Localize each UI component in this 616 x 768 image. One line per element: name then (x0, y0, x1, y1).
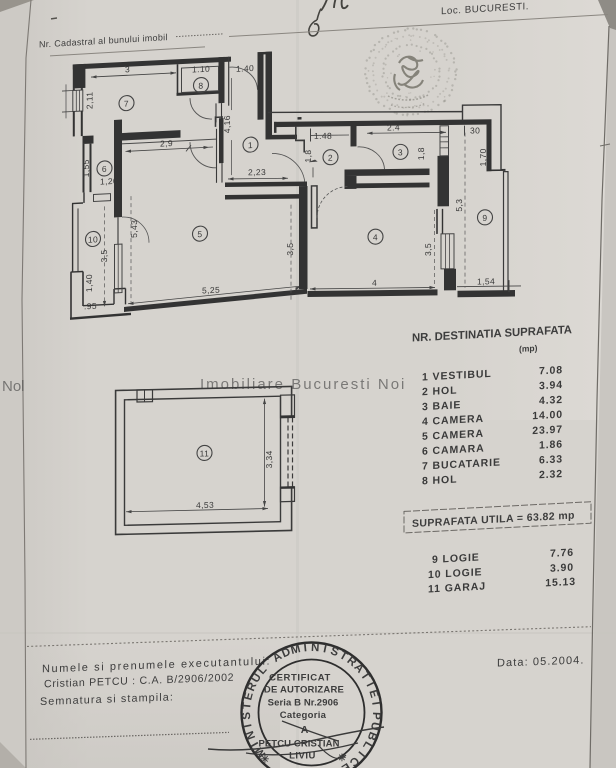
svg-text:4,16: 4,16 (222, 115, 232, 134)
svg-text:8: 8 (198, 80, 203, 90)
svg-text:.95: .95 (84, 301, 97, 312)
svg-text:1,8: 1,8 (303, 149, 313, 162)
svg-text:1: 1 (248, 140, 253, 150)
svg-text:3: 3 (398, 147, 403, 157)
svg-text:Nol: Nol (2, 378, 25, 395)
svg-text:6.33: 6.33 (539, 453, 563, 466)
svg-text:5: 5 (197, 229, 202, 239)
svg-text:T: T (241, 702, 254, 710)
svg-text:9: 9 (482, 213, 487, 223)
svg-text:15.13: 15.13 (545, 576, 576, 590)
svg-text:Imobiliare Bucuresti Noi: Imobiliare Bucuresti Noi (200, 376, 406, 393)
svg-text:S: S (241, 711, 253, 720)
svg-text:3 BAIE: 3 BAIE (422, 399, 461, 413)
svg-text:5,3: 5,3 (454, 199, 464, 212)
svg-text:2.4: 2.4 (387, 122, 400, 132)
svg-text:1.10: 1.10 (192, 64, 210, 75)
svg-text:7: 7 (124, 98, 129, 108)
svg-text:7.08: 7.08 (539, 364, 563, 377)
svg-text:1.48: 1.48 (314, 131, 332, 141)
svg-text:23.97: 23.97 (532, 424, 563, 438)
svg-text:✳: ✳ (261, 755, 270, 766)
svg-text:1,55: 1,55 (81, 159, 91, 178)
svg-text:3,5: 3,5 (285, 243, 295, 256)
svg-text:2 HOL: 2 HOL (422, 384, 457, 398)
svg-text:1,8: 1,8 (416, 147, 426, 160)
svg-text:1.40: 1.40 (236, 63, 254, 74)
svg-text:7.76: 7.76 (550, 547, 574, 560)
svg-text:1,40: 1,40 (84, 274, 94, 293)
svg-text:14.00: 14.00 (532, 409, 563, 423)
svg-text:4.32: 4.32 (539, 394, 563, 407)
svg-text:(mp): (mp) (519, 343, 538, 354)
svg-text:N: N (311, 642, 320, 654)
svg-text:6: 6 (102, 164, 107, 174)
svg-text:3,5: 3,5 (99, 249, 109, 263)
svg-text:1.86: 1.86 (539, 438, 563, 451)
svg-text:4: 4 (373, 232, 378, 242)
svg-text:1,70: 1,70 (478, 148, 488, 166)
svg-text:Seria B Nr.2906: Seria B Nr.2906 (268, 698, 339, 709)
svg-text:Categoria: Categoria (280, 710, 327, 721)
svg-text:2: 2 (328, 153, 333, 163)
svg-text:2,9: 2,9 (160, 138, 173, 149)
svg-text:4: 4 (372, 278, 377, 288)
svg-text:4,53: 4,53 (196, 500, 214, 510)
svg-text:5,43: 5,43 (129, 220, 139, 239)
svg-text:11: 11 (200, 448, 210, 458)
svg-text:5,25: 5,25 (202, 285, 220, 296)
svg-text:3,5: 3,5 (423, 243, 433, 256)
svg-text:30: 30 (470, 125, 480, 135)
svg-text:DE AUTORIZARE: DE AUTORIZARE (264, 685, 344, 696)
svg-text:10: 10 (88, 234, 98, 245)
svg-text:3: 3 (125, 64, 130, 74)
svg-text:8 HOL: 8 HOL (422, 474, 457, 488)
svg-text:9 LOGIE: 9 LOGIE (432, 552, 480, 566)
svg-text:3.94: 3.94 (539, 379, 563, 392)
svg-text:2,11: 2,11 (85, 91, 95, 109)
svg-text:2,23: 2,23 (248, 167, 266, 177)
svg-text:CERTIFICAT: CERTIFICAT (269, 673, 331, 684)
svg-text:3,34: 3,34 (264, 450, 274, 468)
svg-text:P: P (370, 712, 382, 721)
svg-text:2.32: 2.32 (539, 468, 563, 481)
svg-text:3.90: 3.90 (550, 561, 574, 574)
svg-text:1,54: 1,54 (477, 276, 495, 286)
